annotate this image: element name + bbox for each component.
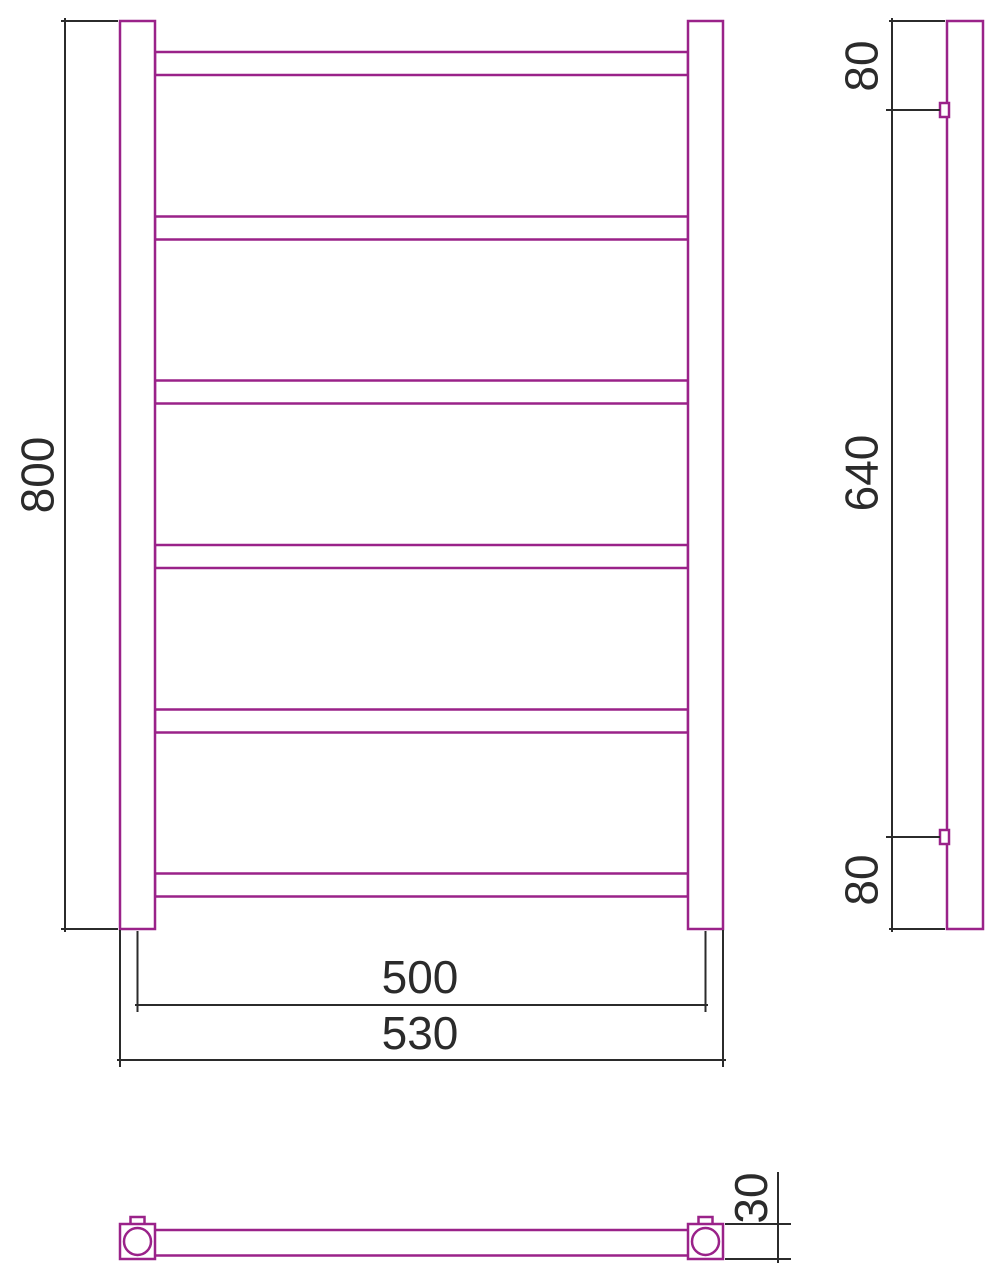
- right-post: [688, 21, 723, 929]
- wall-bracket-bottom: [940, 830, 949, 844]
- dimension-side-offsets: 80 640 80: [836, 18, 945, 932]
- rung-5: [155, 710, 688, 733]
- rung-1: [155, 52, 688, 75]
- dim-label-30: 30: [725, 1172, 777, 1223]
- dim-label-80-bottom: 80: [836, 854, 888, 905]
- plan-view: [120, 1217, 723, 1259]
- side-view: [940, 21, 983, 929]
- dimension-front-height: 800: [12, 18, 118, 932]
- left-post: [120, 21, 155, 929]
- dim-label-530: 530: [382, 1007, 459, 1059]
- dim-label-80-top: 80: [836, 40, 888, 91]
- rung-6: [155, 874, 688, 897]
- front-view: [120, 21, 723, 929]
- dim-label-640: 640: [836, 435, 888, 512]
- dim-label-500: 500: [382, 951, 459, 1003]
- dim-label-800: 800: [12, 437, 64, 514]
- wall-bracket-top: [940, 103, 949, 117]
- dimension-front-axis-width: 500: [135, 931, 708, 1012]
- side-post-profile: [947, 21, 983, 929]
- dimension-plan-depth: 30: [725, 1172, 791, 1263]
- rung-2: [155, 217, 688, 240]
- towel-rail-drawing: 800 500 530 80 640 80: [0, 0, 1004, 1280]
- rung-3: [155, 381, 688, 404]
- rung-4: [155, 545, 688, 568]
- drawing-canvas: 800 500 530 80 640 80: [0, 0, 1004, 1280]
